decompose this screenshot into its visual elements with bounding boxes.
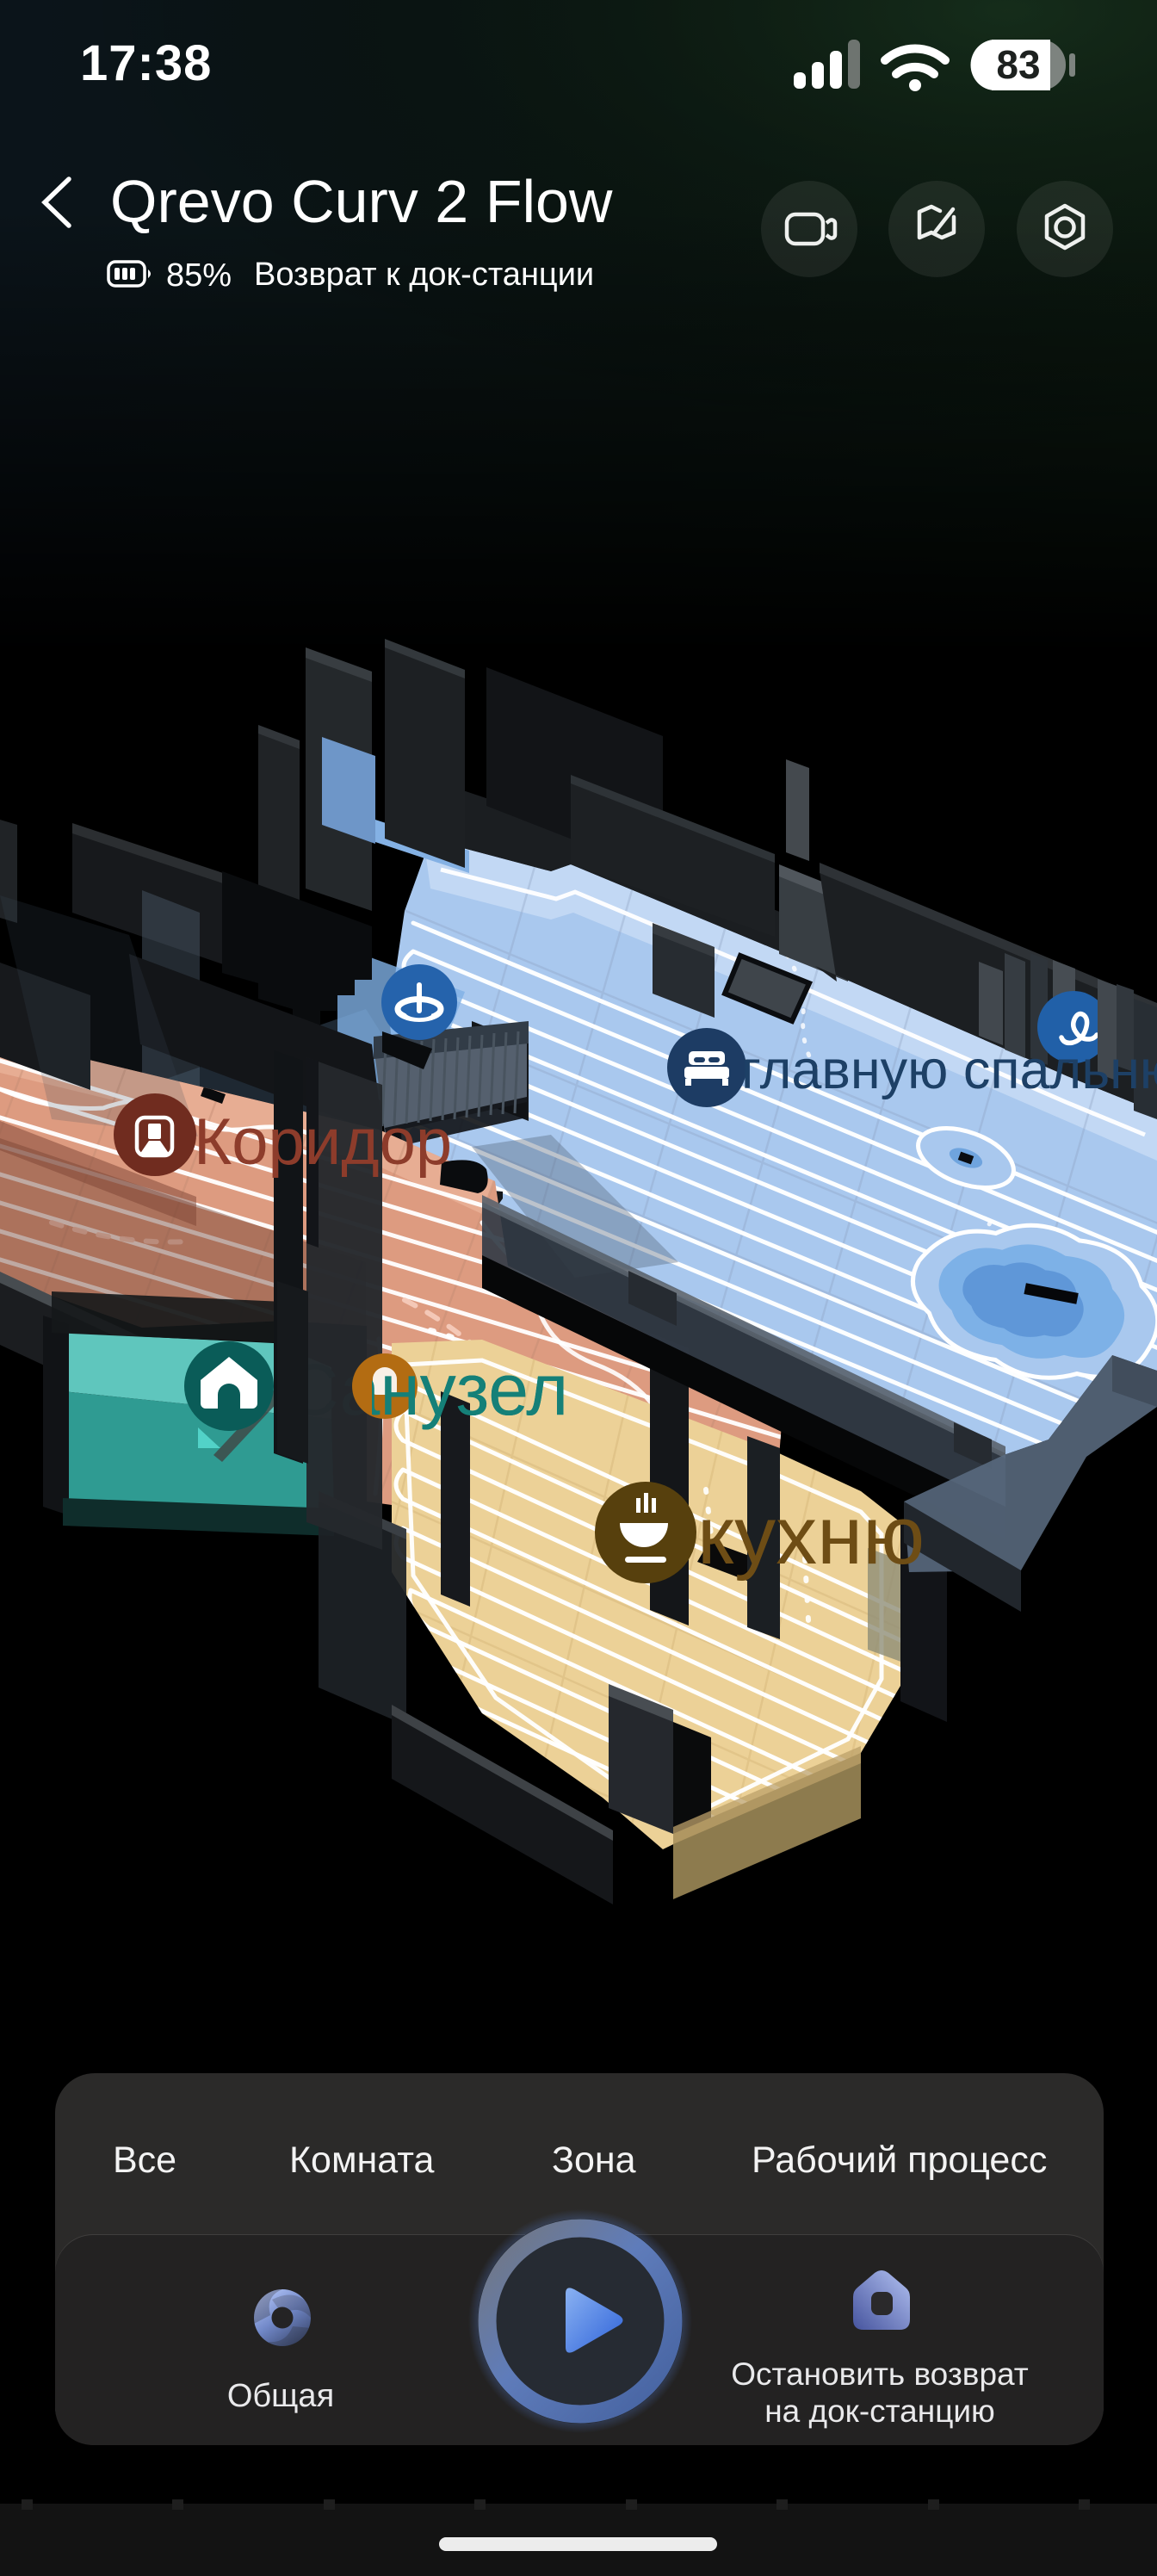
svg-text:Коридор: Коридор xyxy=(194,1105,452,1179)
svg-text:кухню: кухню xyxy=(697,1489,925,1582)
svg-text:главную спальню: главную спальню xyxy=(741,1040,1157,1100)
svg-text:83: 83 xyxy=(996,42,1040,87)
